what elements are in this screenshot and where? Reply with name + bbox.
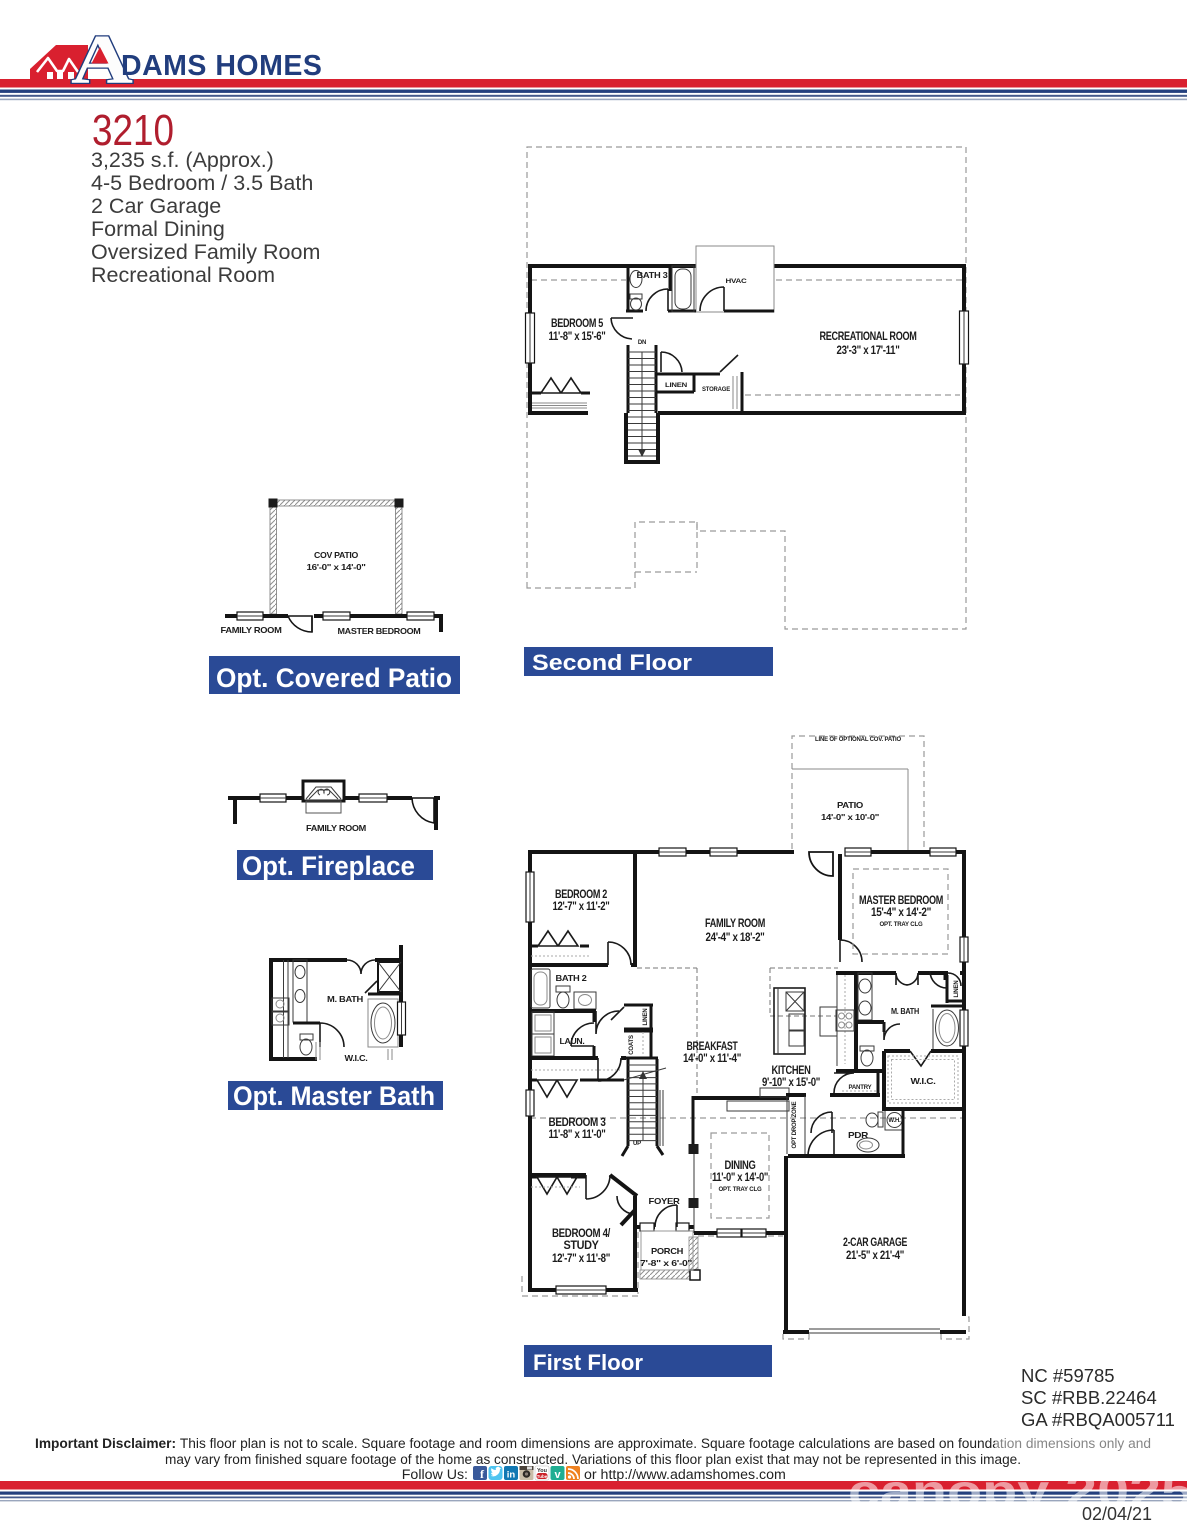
svg-text:PANTRY: PANTRY (849, 1085, 872, 1091)
svg-text:OPT. TRAY CLG: OPT. TRAY CLG (880, 922, 924, 928)
svg-text:14'-0" x 11'-4": 14'-0" x 11'-4" (683, 1053, 741, 1065)
svg-text:STUDY: STUDY (564, 1240, 600, 1252)
svg-text:12'-7" x 11'-8": 12'-7" x 11'-8" (552, 1253, 610, 1265)
svg-text:OPT. TRAY CLG: OPT. TRAY CLG (719, 1187, 763, 1193)
svg-text:BATH 2: BATH 2 (556, 973, 588, 983)
svg-text:BEDROOM 3: BEDROOM 3 (549, 1117, 606, 1129)
svg-text:21'-5" x 21'-4": 21'-5" x 21'-4" (846, 1250, 904, 1262)
svg-text:MASTER BEDROOM: MASTER BEDROOM (338, 626, 421, 636)
svg-text:RECREATIONAL ROOM: RECREATIONAL ROOM (820, 331, 917, 343)
svg-text:BATH 3: BATH 3 (637, 270, 669, 280)
svg-text:STORAGE: STORAGE (702, 387, 730, 393)
svg-text:LINEN: LINEN (643, 1008, 649, 1025)
svg-text:4-5 Bedroom / 3.5 Bath: 4-5 Bedroom / 3.5 Bath (91, 171, 313, 195)
svg-text:LINEN: LINEN (954, 980, 960, 997)
svg-text:2-CAR GARAGE: 2-CAR GARAGE (843, 1237, 908, 1249)
svg-text:COATS: COATS (629, 1035, 635, 1055)
svg-text:MASTER BEDROOM: MASTER BEDROOM (859, 895, 943, 907)
svg-text:KITCHEN: KITCHEN (772, 1065, 811, 1077)
svg-text:Opt. Fireplace: Opt. Fireplace (242, 851, 415, 881)
svg-text:W.H.: W.H. (888, 1118, 901, 1124)
svg-text:Important Disclaimer: This flo: Important Disclaimer: This floor plan is… (35, 1436, 1151, 1452)
svg-text:Tube: Tube (537, 1474, 548, 1479)
svg-text:12'-7" x 11'-2": 12'-7" x 11'-2" (553, 901, 610, 913)
svg-text:FAMILY ROOM: FAMILY ROOM (221, 625, 282, 635)
svg-text:BEDROOM 2: BEDROOM 2 (555, 889, 607, 901)
svg-text:PORCH: PORCH (651, 1246, 683, 1256)
svg-text:02/04/21: 02/04/21 (1082, 1504, 1152, 1524)
svg-text:LINEN: LINEN (665, 383, 687, 389)
svg-text:LINE OF OPTIONAL COV. PATIO: LINE OF OPTIONAL COV. PATIO (815, 737, 902, 743)
svg-text:FAMILY ROOM: FAMILY ROOM (306, 823, 366, 833)
svg-text:PDR: PDR (848, 1130, 868, 1140)
svg-text:OPT DROP ZONE: OPT DROP ZONE (792, 1101, 798, 1148)
svg-text:Second Floor: Second Floor (532, 650, 692, 675)
svg-text:PATIO: PATIO (837, 800, 864, 810)
svg-text:W.I.C.: W.I.C. (345, 1053, 368, 1063)
svg-text:DINING: DINING (725, 1160, 756, 1172)
svg-text:Formal Dining: Formal Dining (91, 217, 225, 241)
svg-text:LAUN.: LAUN. (560, 1036, 585, 1046)
svg-text:11'-8" x 11'-0": 11'-8" x 11'-0" (549, 1129, 606, 1141)
svg-text:v: v (554, 1469, 561, 1481)
svg-text:DN: DN (638, 340, 646, 346)
svg-text:14'-0" x 10'-0": 14'-0" x 10'-0" (821, 812, 879, 822)
svg-text:DAMS HOMES: DAMS HOMES (121, 50, 322, 82)
svg-text:Recreational Room: Recreational Room (91, 263, 275, 287)
svg-text:11'-8" x 15'-6": 11'-8" x 15'-6" (549, 331, 606, 343)
svg-text:15'-4" x 14'-2": 15'-4" x 14'-2" (871, 907, 931, 919)
svg-text:COV PATIO: COV PATIO (314, 550, 359, 560)
svg-text:FAMILY ROOM: FAMILY ROOM (705, 918, 765, 930)
svg-text:UP: UP (633, 1141, 641, 1147)
svg-text:NC #59785: NC #59785 (1021, 1365, 1115, 1386)
svg-text:16'-0" x 14'-0": 16'-0" x 14'-0" (307, 562, 366, 572)
svg-text:SC #RBB.22464: SC #RBB.22464 (1021, 1387, 1157, 1408)
svg-text:M. BATH: M. BATH (891, 1006, 919, 1016)
svg-text:Opt. Covered Patio: Opt. Covered Patio (216, 663, 452, 693)
svg-text:W.I.C.: W.I.C. (911, 1076, 936, 1086)
svg-text:GA #RBQA005711: GA #RBQA005711 (1021, 1409, 1175, 1430)
svg-text:First Floor: First Floor (533, 1350, 643, 1375)
svg-text:BREAKFAST: BREAKFAST (687, 1041, 738, 1053)
svg-text:BEDROOM 5: BEDROOM 5 (551, 318, 604, 330)
svg-text:BEDROOM 4/: BEDROOM 4/ (552, 1228, 611, 1240)
svg-text:24'-4" x 18'-2": 24'-4" x 18'-2" (706, 932, 765, 944)
svg-text:23'-3" x 17'-11": 23'-3" x 17'-11" (837, 345, 900, 357)
svg-text:Follow Us:: Follow Us: (402, 1467, 468, 1483)
svg-text:2 Car Garage: 2 Car Garage (91, 194, 221, 218)
svg-text:Oversized Family Room: Oversized Family Room (91, 240, 320, 264)
svg-text:3,235 s.f. (Approx.): 3,235 s.f. (Approx.) (91, 148, 274, 172)
svg-text:M. BATH: M. BATH (327, 994, 363, 1004)
svg-text:9'-10" x 15'-0": 9'-10" x 15'-0" (762, 1077, 820, 1089)
svg-text:7'-8" x 6'-0": 7'-8" x 6'-0" (640, 1258, 692, 1268)
svg-text:HVAC: HVAC (726, 279, 748, 285)
svg-text:11'-0" x 14'-0": 11'-0" x 14'-0" (712, 1172, 768, 1184)
svg-text:or http://www.adamshomes.com: or http://www.adamshomes.com (584, 1467, 786, 1483)
svg-text:in: in (507, 1470, 516, 1481)
svg-text:FOYER: FOYER (649, 1196, 680, 1206)
svg-text:Opt. Master Bath: Opt. Master Bath (233, 1081, 435, 1111)
